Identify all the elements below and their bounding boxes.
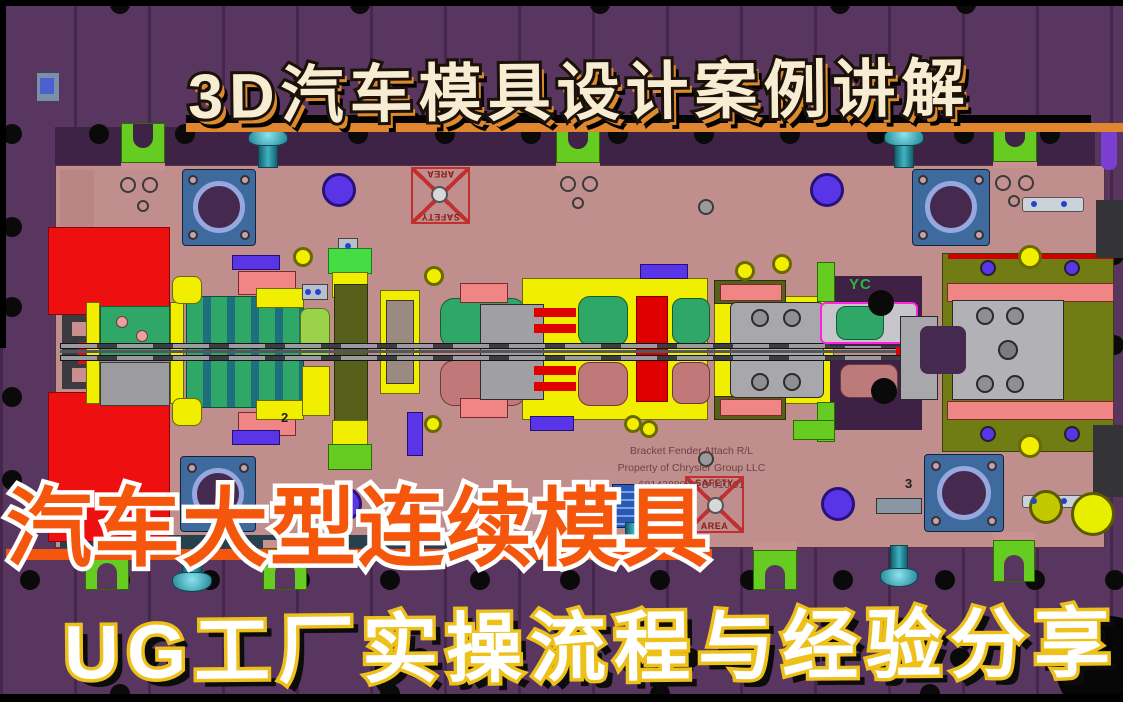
subtitle-left: 汽车大型连续模具 [6,458,710,583]
top-edge-bar [0,0,1123,6]
station-number-2: 2 [281,410,288,425]
area-label: AREA [413,169,468,179]
main-title: 3D汽车模具设计案例讲解 [188,38,971,137]
thumbnail-stage: SAFETY AREA SAFETY AREA Bracket Fender A… [0,0,1123,702]
bottom-edge-bar [0,694,1123,702]
station-number-3: 3 [905,476,912,491]
yc-datum-label: YC [849,276,872,293]
safety-area-marker-top: SAFETY AREA [411,167,470,224]
safety-label: SAFETY [413,212,468,222]
left-edge-bar [0,0,6,348]
subtitle-bottom: UG工厂实操流程与经验分享 [64,581,1119,700]
safety-center-hole [432,187,449,204]
